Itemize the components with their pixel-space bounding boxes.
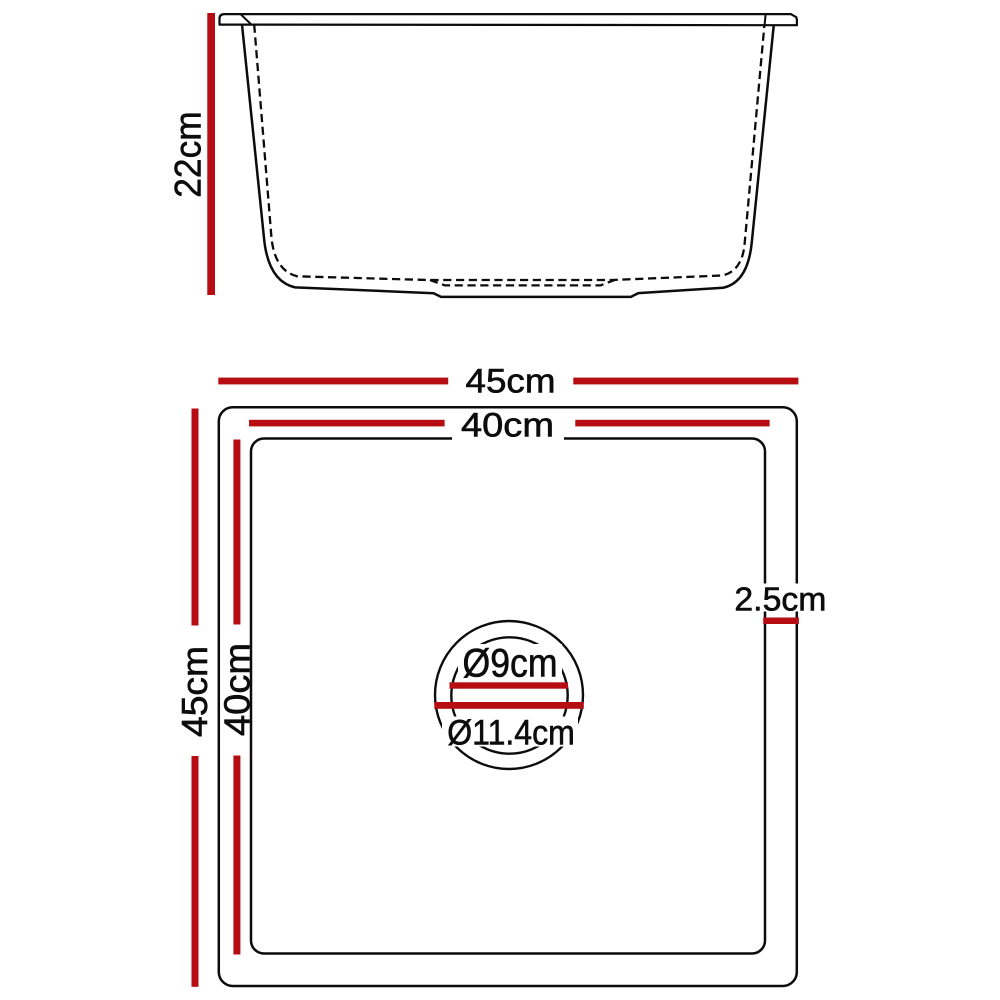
svg-text:45cm: 45cm [466,363,556,401]
svg-text:45cm: 45cm [174,646,215,737]
svg-text:22cm: 22cm [167,111,209,198]
svg-text:2.5cm: 2.5cm [734,580,826,617]
svg-text:40cm: 40cm [461,407,554,445]
svg-text:Ø11.4cm: Ø11.4cm [447,713,575,753]
svg-text:40cm: 40cm [216,643,257,736]
svg-text:Ø9cm: Ø9cm [463,641,558,685]
